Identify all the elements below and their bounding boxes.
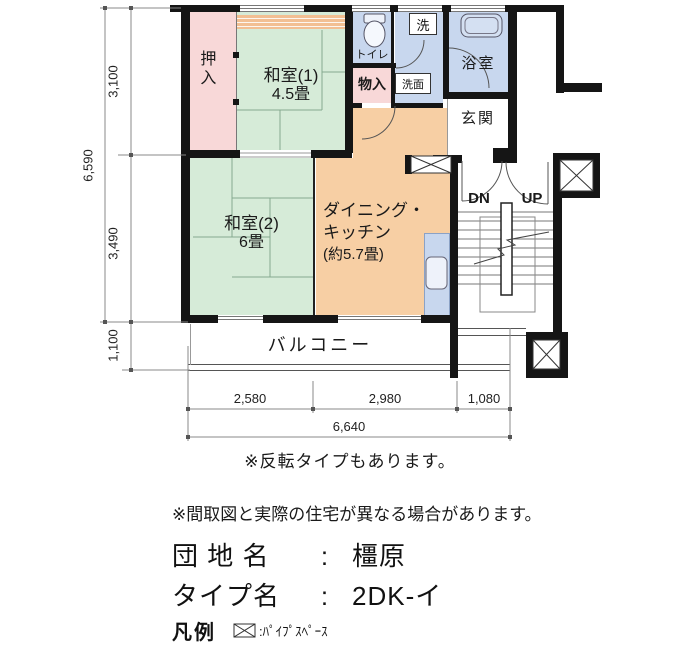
estate-label: 団 地 名 <box>172 536 314 573</box>
type-separator: : <box>314 581 336 612</box>
estate-value: 橿原 <box>352 536 406 573</box>
washitsu2-size: 6畳 <box>190 234 313 252</box>
wall <box>405 155 412 174</box>
dim-bottom-middle: 2,980 <box>355 391 415 406</box>
label-bath: 浴室 <box>449 55 508 72</box>
estate-separator: : <box>314 541 336 572</box>
note-reverse-type: ※反転タイプもあります。 <box>0 452 700 472</box>
legend-row: 凡例 :ﾊﾟｲﾌﾟｽﾍﾟｰｽ <box>172 616 328 645</box>
pipe-space-frame <box>553 153 600 198</box>
wall <box>181 150 240 158</box>
wall <box>508 5 517 99</box>
wall <box>263 315 338 323</box>
wall <box>395 103 443 108</box>
washitsu2-name: 和室(2) <box>190 214 313 234</box>
dim-left-top: 3,100 <box>106 52 121 112</box>
room-bath <box>449 12 508 92</box>
wall <box>345 103 362 108</box>
label-balcony: バルコニー <box>230 335 410 356</box>
sliding-window <box>338 316 421 322</box>
oshiire-hinge-top <box>233 52 239 58</box>
wall <box>556 83 602 92</box>
type-value: 2DK-イ <box>352 576 442 613</box>
washstand-text: 洗面 <box>402 76 424 92</box>
washitsu2-dk-divider <box>313 158 315 315</box>
wall <box>181 315 218 323</box>
label-stair-up: UP <box>516 190 548 207</box>
floor-plan-page: 押入 和室(1) 4.5畳 和室(2) 6畳 ダイニング・ キッチン (約5.7… <box>0 0 700 650</box>
label-genkan: 玄関 <box>448 110 508 127</box>
staircase <box>458 203 553 312</box>
label-toilet: トイレ <box>352 49 392 62</box>
legend-label: 凡例 <box>172 616 216 645</box>
label-stair-dn: DN <box>463 190 495 207</box>
washitsu1-window-ledge <box>237 15 345 29</box>
dk-line3: (約5.7畳) <box>323 244 448 266</box>
legend-pipe-space-text: :ﾊﾟｲﾌﾟｽﾍﾟｰｽ <box>259 621 328 640</box>
dim-left-bottom: 1,100 <box>106 316 121 376</box>
balcony-left-line <box>190 324 191 365</box>
wall <box>493 148 517 163</box>
wall <box>556 5 564 93</box>
pipe-space-legend-icon <box>232 622 258 640</box>
stair-break-line <box>474 232 549 264</box>
laundry-text: 洗 <box>416 15 429 34</box>
dim-left-middle: 3,490 <box>106 214 121 274</box>
label-washitsu2: 和室(2) 6畳 <box>190 214 313 252</box>
label-washitsu1: 和室(1) 4.5畳 <box>237 66 345 104</box>
window <box>352 5 390 12</box>
dim-bottom-left: 2,580 <box>220 391 280 406</box>
type-label: タイプ名 <box>172 576 314 613</box>
wall <box>181 5 190 323</box>
wall <box>345 63 396 68</box>
dk-line1: ダイニング・ <box>323 200 448 222</box>
stair-rail <box>501 203 512 295</box>
label-washstand: 洗面 <box>395 73 431 94</box>
window <box>398 5 442 12</box>
type-name-row: タイプ名 : 2DK-イ <box>172 576 442 613</box>
washitsu1-name: 和室(1) <box>237 66 345 86</box>
wall <box>553 198 562 334</box>
pipe-space-frame <box>526 332 568 378</box>
estate-name-row: 団 地 名 : 橿原 <box>172 536 406 573</box>
label-laundry: 洗 <box>409 13 437 35</box>
label-storage: 物入 <box>351 76 393 92</box>
label-oshiire: 押入 <box>196 50 214 88</box>
wall <box>443 92 517 99</box>
window <box>240 5 304 12</box>
washitsu1-size: 4.5畳 <box>237 86 345 104</box>
window <box>451 5 505 12</box>
label-dining-kitchen: ダイニング・ キッチン (約5.7畳) <box>323 200 448 266</box>
room-dk-upper <box>353 108 448 158</box>
note-disclaimer: ※間取図と実際の住宅が異なる場合があります。 <box>172 505 692 525</box>
dim-bottom-total: 6,640 <box>319 419 379 434</box>
sliding-window <box>218 316 263 322</box>
wall <box>450 155 458 378</box>
dk-line2: キッチン <box>323 222 448 244</box>
fusuma-door <box>240 153 311 157</box>
dim-bottom-right: 1,080 <box>454 391 514 406</box>
balcony-edge <box>188 364 510 371</box>
landing-edge <box>458 328 526 336</box>
dim-left-total: 6,590 <box>81 136 96 196</box>
